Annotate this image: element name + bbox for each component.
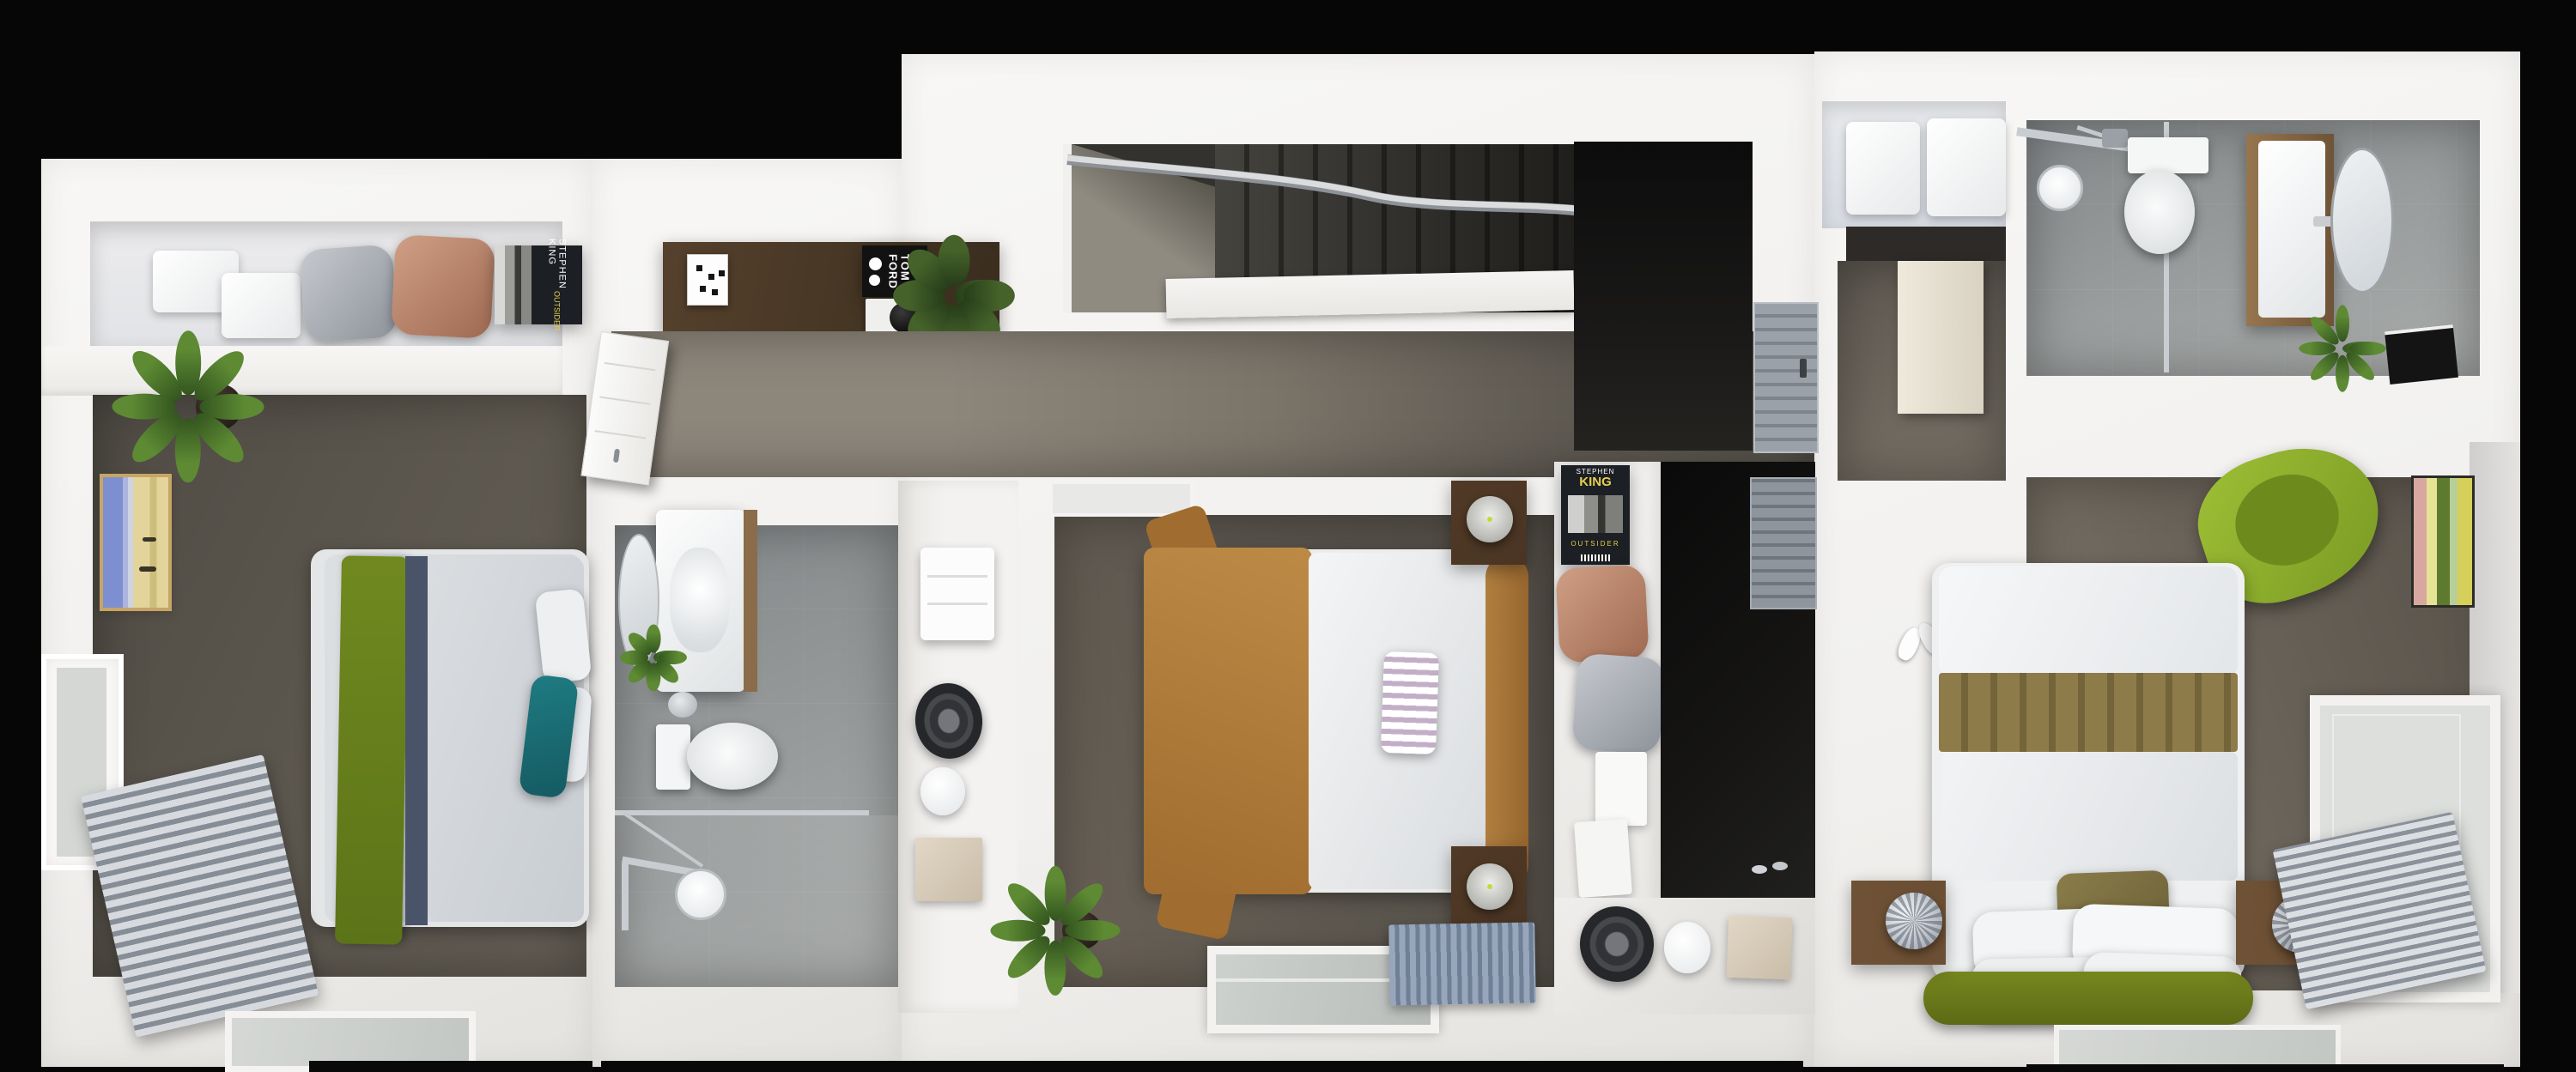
rain-shower-head bbox=[2037, 165, 2083, 211]
copper-satin-pillow bbox=[1555, 564, 1649, 663]
round-hat-box bbox=[1664, 922, 1710, 973]
duvet-top-fold bbox=[1939, 566, 2238, 678]
vanity-wood-edge bbox=[744, 510, 757, 692]
facade-glazing-strip bbox=[309, 1061, 592, 1072]
rattan-ball-lamp bbox=[1886, 893, 1942, 949]
black-vase bbox=[890, 302, 920, 333]
stephen-king-book: STEPHEN KING OUTSIDER bbox=[495, 245, 582, 324]
center-bed-headboard bbox=[1485, 556, 1528, 886]
oval-mirror bbox=[618, 534, 659, 668]
tom-ford-book: TOM FORD bbox=[862, 245, 927, 297]
book-title: OUTSIDER bbox=[1571, 540, 1619, 548]
olive-pleated-runner bbox=[1939, 673, 2238, 752]
framed-print bbox=[687, 254, 728, 306]
door-handle bbox=[1800, 359, 1807, 378]
book-title-line: FORD bbox=[887, 254, 900, 289]
white-storage-box bbox=[1595, 752, 1647, 826]
book-title-line: TOM bbox=[898, 254, 911, 282]
towel-rail-white bbox=[920, 548, 994, 640]
storage-box bbox=[1727, 916, 1792, 980]
towel-stack bbox=[1846, 122, 1920, 215]
navy-blanket-edge bbox=[405, 556, 428, 925]
pleated-blue-runner bbox=[1388, 923, 1536, 1006]
folded-sheet bbox=[1942, 752, 2238, 881]
round-hat-box bbox=[920, 767, 965, 815]
book-author: STEPHEN KING bbox=[546, 239, 567, 289]
left-closet-front bbox=[41, 346, 562, 396]
silver-satin-pillow bbox=[1571, 653, 1666, 755]
north-window-center bbox=[1049, 481, 1194, 517]
bathroom-sink bbox=[656, 510, 745, 692]
green-headboard bbox=[1923, 972, 2253, 1025]
shower-pipe bbox=[622, 863, 629, 930]
table-lamp bbox=[1467, 496, 1513, 542]
silver-satin-pillow bbox=[299, 244, 398, 342]
toilet-cistern bbox=[656, 724, 690, 790]
wood-vanity bbox=[2246, 134, 2334, 326]
dark-cabinet bbox=[1846, 227, 2006, 261]
shoes bbox=[1772, 862, 1788, 870]
toilet-bowl bbox=[2124, 170, 2195, 254]
shower-mixer bbox=[2102, 129, 2128, 148]
stairwell-void bbox=[1574, 142, 1753, 451]
sliding-door-panel bbox=[1898, 261, 1984, 414]
toilet-cistern bbox=[2128, 137, 2208, 173]
camel-throw bbox=[1144, 548, 1312, 894]
storage-box bbox=[915, 838, 982, 901]
towel-stack bbox=[222, 273, 301, 338]
wall-art-abstract bbox=[2411, 475, 2475, 608]
walk-in-shower-area bbox=[615, 815, 898, 987]
facade-glazing-strip bbox=[2026, 1064, 2504, 1072]
stephen-king-book: STEPHEN KING OUTSIDER bbox=[1561, 465, 1630, 565]
toilet-paper-holder bbox=[668, 692, 697, 718]
shower-head bbox=[675, 869, 726, 920]
towel-stack bbox=[1927, 118, 2006, 216]
wall-art-beach bbox=[100, 474, 172, 611]
book-author: KING bbox=[1577, 475, 1615, 488]
wardrobe-dark-interior bbox=[1661, 462, 1815, 898]
barcode bbox=[1581, 554, 1610, 561]
striped-accent-pillow bbox=[1381, 651, 1439, 754]
bed-pillow bbox=[535, 588, 592, 683]
book-title: OUTSIDER bbox=[552, 291, 561, 331]
toilet-bowl bbox=[687, 723, 778, 790]
green-knit-throw bbox=[335, 555, 409, 944]
stair-handrail bbox=[1060, 146, 1593, 232]
white-storage-box bbox=[1574, 819, 1632, 898]
door-handle bbox=[613, 449, 620, 463]
shoes bbox=[1752, 865, 1767, 874]
louvered-panel bbox=[1750, 477, 1817, 609]
table-lamp bbox=[1467, 863, 1513, 910]
dark-window bbox=[2385, 324, 2458, 385]
floor-plan-render: STEPHEN KING OUTSIDER TOM bbox=[0, 0, 2576, 1072]
facade-glazing-strip bbox=[601, 1061, 1803, 1072]
copper-satin-pillow bbox=[391, 234, 495, 339]
louvered-sliding-door bbox=[1753, 302, 1819, 453]
round-mirror bbox=[2330, 148, 2394, 294]
